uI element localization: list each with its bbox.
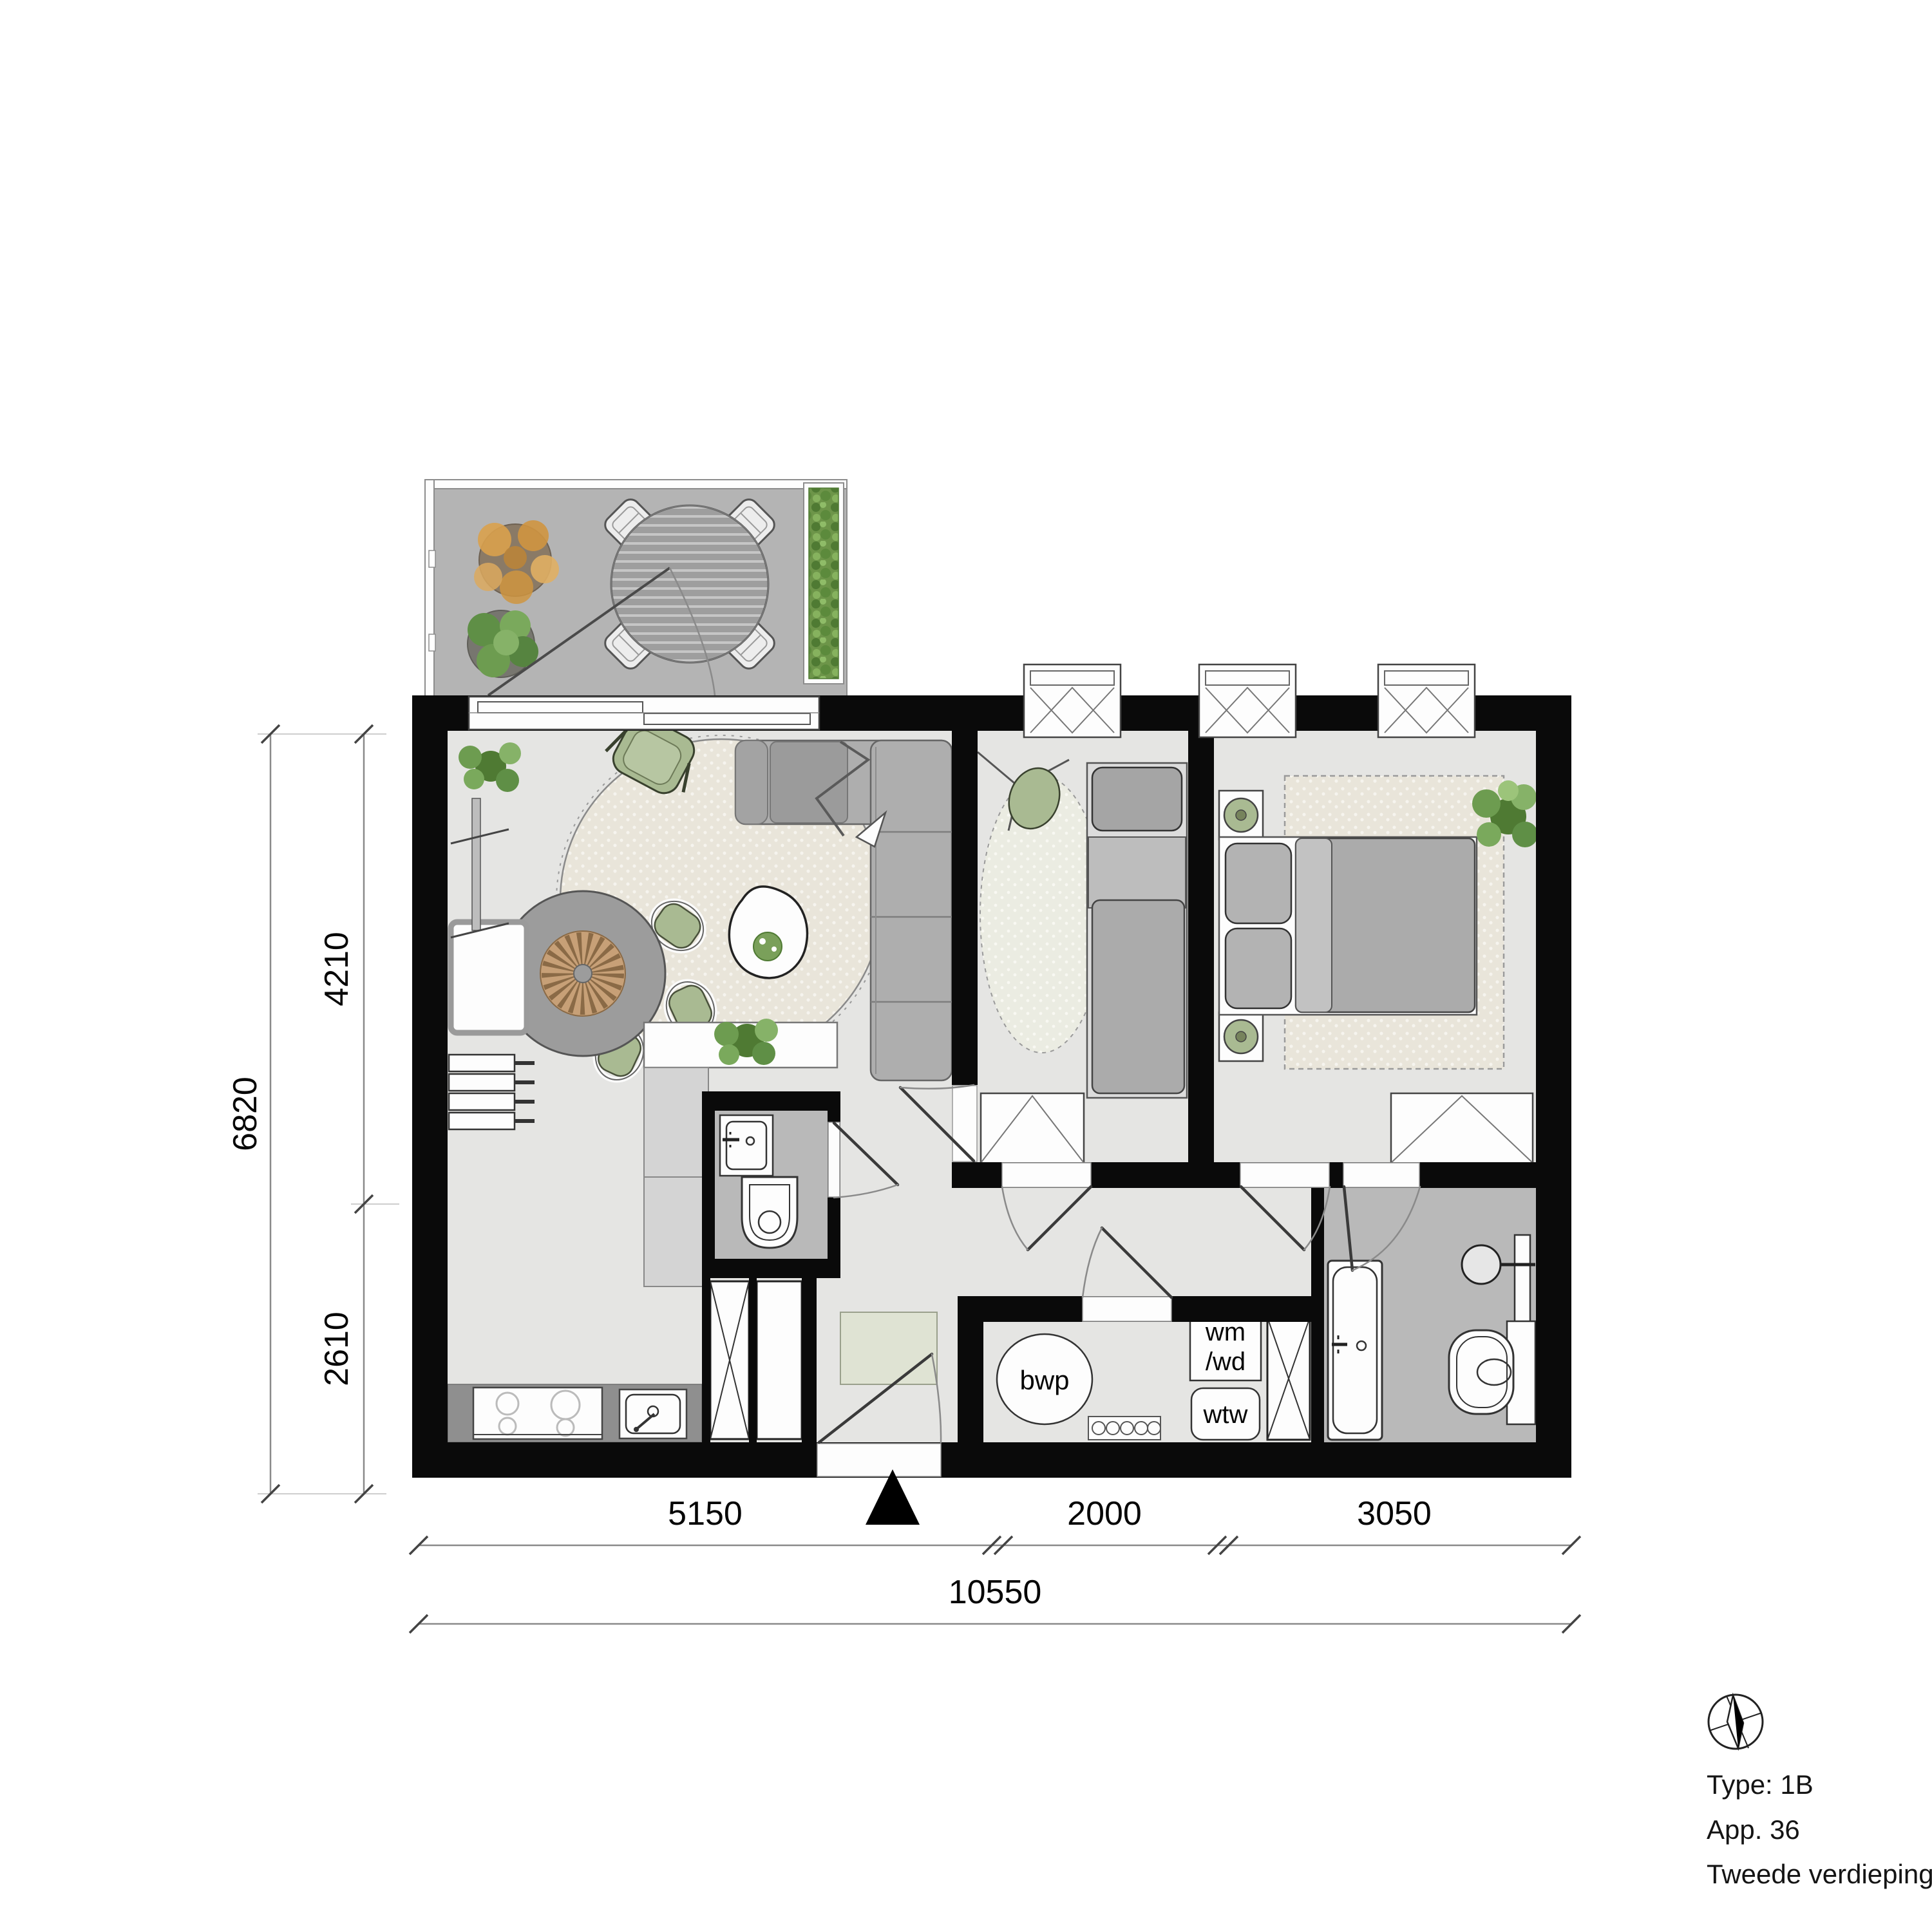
dim-bottom-total: 10550 [949, 1574, 1042, 1611]
type-label: Type: 1B [1707, 1769, 1814, 1800]
doormat [840, 1312, 937, 1384]
dim-left-lower: 2610 [318, 1312, 355, 1386]
floor-label: Tweede verdieping [1707, 1859, 1932, 1889]
dim-bottom-left: 5150 [668, 1495, 743, 1532]
balcony-railing-left [425, 480, 434, 699]
hob [473, 1388, 602, 1439]
duvet [1092, 900, 1184, 1093]
bathtub [1328, 1261, 1382, 1440]
window [1378, 664, 1475, 737]
table-plant-icon [753, 932, 782, 961]
bedside-lamp-icon [1224, 798, 1258, 832]
floorplan-page: bwp wm /wd wtw [0, 0, 1932, 1931]
bathroom-toilet [1449, 1321, 1535, 1424]
floorplan-drawing: bwp wm /wd wtw [0, 0, 1932, 1931]
pillow [1226, 843, 1291, 923]
double-bed [1219, 837, 1477, 1015]
sliding-door [469, 697, 819, 730]
window [1199, 664, 1296, 737]
washer-label-1: wm [1205, 1318, 1245, 1346]
balcony-railing-top [425, 480, 847, 489]
heat-recovery-label: wtw [1203, 1400, 1248, 1429]
shower-head-icon [1462, 1245, 1501, 1284]
wardrobe [1391, 1093, 1533, 1164]
wc-toilet [742, 1177, 797, 1248]
single-bed [1087, 763, 1187, 1098]
title-block: Type: 1B App. 36 Tweede verdieping [1707, 1695, 1932, 1889]
balcony [425, 480, 847, 699]
balcony-table [601, 496, 778, 672]
wardrobe [981, 1093, 1084, 1164]
heat-pump-label: bwp [1019, 1365, 1069, 1395]
apartment-label: App. 36 [1707, 1814, 1800, 1845]
compass-icon [1709, 1695, 1763, 1749]
vent-grille-icon [1088, 1417, 1160, 1440]
pillow [1226, 928, 1291, 1008]
wc-sink [720, 1115, 773, 1176]
pillow [1092, 768, 1182, 831]
dim-bottom-middle: 2000 [1067, 1495, 1142, 1532]
dim-left-upper: 4210 [318, 932, 355, 1006]
dim-left-total: 6820 [227, 1077, 264, 1151]
sideboard [451, 922, 527, 1033]
coffee-table [729, 887, 807, 978]
bedside-lamp-icon [1224, 1020, 1258, 1053]
dim-bottom-right: 3050 [1357, 1495, 1432, 1532]
hedge-icon [809, 488, 838, 679]
meter-cupboard [757, 1281, 802, 1439]
kitchen-sink [620, 1389, 687, 1438]
washer-label-2: /wd [1206, 1348, 1245, 1376]
window [1024, 664, 1121, 737]
